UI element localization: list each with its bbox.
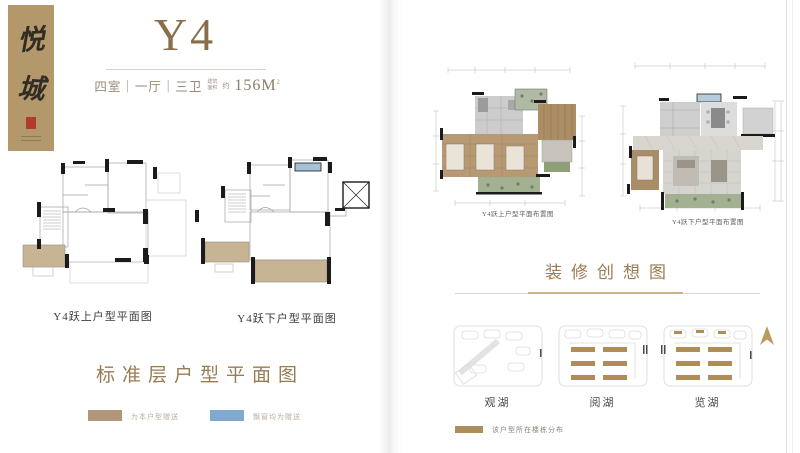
banner-divider [21,136,41,137]
site-map-lanhu [660,323,755,390]
plan-lower-caption: Y4跃下户型平面图 [212,310,362,326]
area-approx: 约 [222,81,229,91]
legend-swatch-gift-area [88,410,122,421]
brand-title-char1: 悦 [7,25,55,55]
right-section-divider-accent [528,292,683,294]
area-label: 建筑 面积 [207,80,217,92]
furnished-plan-upper-caption: Y4跃上户型平面布置图 [458,208,578,218]
unit-spec: 四室｜一厅｜三卫 [94,76,202,95]
map-label-yuehu: 阅湖 [555,394,650,410]
furnished-plan-lower [615,56,793,216]
floor-plan-lower-duplex [195,150,392,312]
map-label-guanhu: 观湖 [450,394,545,410]
legend-label-bay-window: 飘窗均为赠送 [253,412,301,422]
north-arrow-icon [758,325,776,347]
area-value: 156M2 [234,77,280,95]
brand-banner: 悦 城 [8,5,54,151]
legend-swatch-building-location [455,426,483,433]
banner-divider [21,140,41,141]
legend-label-gift-area: 为本户型赠送 [131,412,179,422]
unit-title: Y4 [95,8,275,61]
seal-icon [26,117,36,129]
left-section-title: 标准层户型平面图 [55,360,345,387]
furnished-plan-upper [430,56,595,208]
page-edge-line [786,0,787,453]
legend-swatch-bay-window [210,410,244,421]
page-edge-line-outer [792,0,793,453]
site-map-yuehu [555,323,650,390]
floor-plan-upper-duplex [15,155,197,307]
title-divider [106,69,266,70]
plan-upper-caption: Y4跃上户型平面图 [28,308,178,324]
legend-label-building-location: 该户型所在楼栋分布 [492,425,564,435]
furnished-plan-lower-caption: Y4跃下户型平面布置图 [648,216,768,226]
unit-spec-row: 四室｜一厅｜三卫 建筑 面积 约 156M2 [90,76,285,95]
brochure-page: 悦 城 Y4 四室｜一厅｜三卫 建筑 面积 约 156M2 [0,0,800,453]
map-label-lanhu: 览湖 [660,394,755,410]
site-map-guanhu [450,323,545,390]
right-section-title: 装修创想图 [465,258,755,283]
page-gutter [378,0,404,453]
brand-title-char2: 城 [7,75,54,104]
